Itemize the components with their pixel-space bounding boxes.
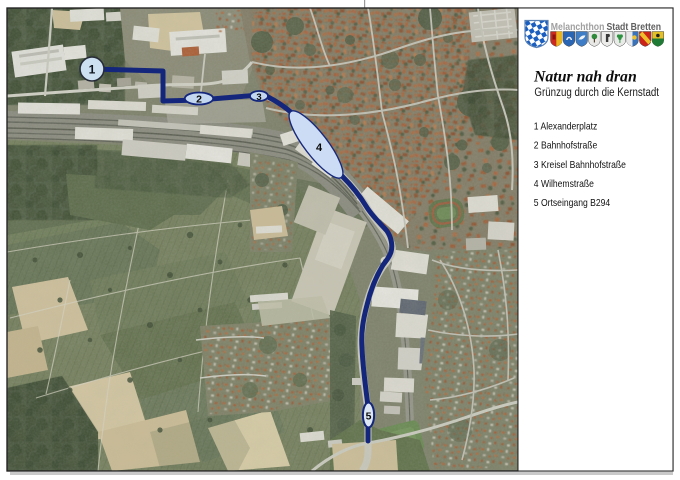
svg-text:Natur nah dran: Natur nah dran — [533, 69, 637, 86]
svg-text:3 Kreisel Bahnhofstraße: 3 Kreisel Bahnhofstraße — [534, 159, 626, 170]
svg-text:5 Ortseingang B294: 5 Ortseingang B294 — [534, 198, 610, 209]
svg-text:2 Bahnhofstraße: 2 Bahnhofstraße — [534, 140, 597, 151]
svg-text:1 Alexanderplatz: 1 Alexanderplatz — [534, 121, 598, 132]
svg-text:4: 4 — [316, 142, 323, 154]
svg-text:4 Wilhemstraße: 4 Wilhemstraße — [534, 178, 594, 189]
svg-text:2: 2 — [196, 94, 202, 106]
svg-text:Stadt Bretten: Stadt Bretten — [607, 21, 662, 32]
svg-text:5: 5 — [366, 411, 372, 423]
svg-text:1: 1 — [89, 63, 96, 77]
svg-text:Grünzug durch die Kernstadt: Grünzug durch die Kernstadt — [534, 86, 659, 99]
svg-text:3: 3 — [256, 92, 261, 103]
svg-text:Melanchthon: Melanchthon — [551, 21, 605, 32]
